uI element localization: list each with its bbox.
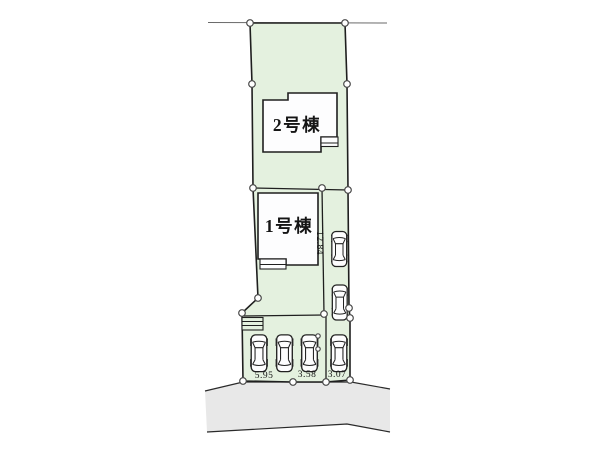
site-plan-canvas: 2号棟 1号棟 5.95 3.58 3.07 12.84 [0,0,600,449]
dimension-side-vertical: 12.84 [314,231,324,255]
building-2-label: 2号棟 [273,115,321,135]
car-bottom-1 [250,335,268,372]
boundary-point [250,185,257,192]
dimension-bottom-right: 3.07 [328,370,347,380]
road-surface [205,382,390,432]
car-side-2 [331,285,348,320]
building-1: 1号棟 [258,193,318,269]
boundary-point [239,310,246,317]
boundary-point [344,81,351,88]
boundary-point [342,20,349,27]
car-side-1 [331,231,348,266]
boundary-point [345,187,352,194]
boundary-point [255,295,262,302]
dimension-bottom-left: 5.95 [255,371,274,381]
road [205,382,390,432]
boundary-point [347,377,354,384]
boundary-point [290,379,297,386]
car-bottom-2 [275,335,293,372]
boundary-point [346,305,353,312]
building-1-label: 1号棟 [265,216,313,236]
building-2-porch [321,137,338,147]
boundary-point [321,311,328,318]
site-plan-image: 2号棟 1号棟 5.95 3.58 3.07 12.84 [0,0,600,449]
entrance-steps [242,318,263,331]
building-2: 2号棟 [263,93,338,152]
gate-post-point [316,347,320,351]
boundary-point [240,378,247,385]
boundary-point [247,20,254,27]
boundary-point [347,315,354,322]
boundary-point [249,81,256,88]
car-bottom-3 [300,335,318,372]
boundary-point [323,379,330,386]
dimension-bottom-middle: 3.58 [298,370,317,380]
boundary-point [319,185,326,192]
gate-post-point [316,334,320,338]
car-bottom-4 [330,335,348,372]
